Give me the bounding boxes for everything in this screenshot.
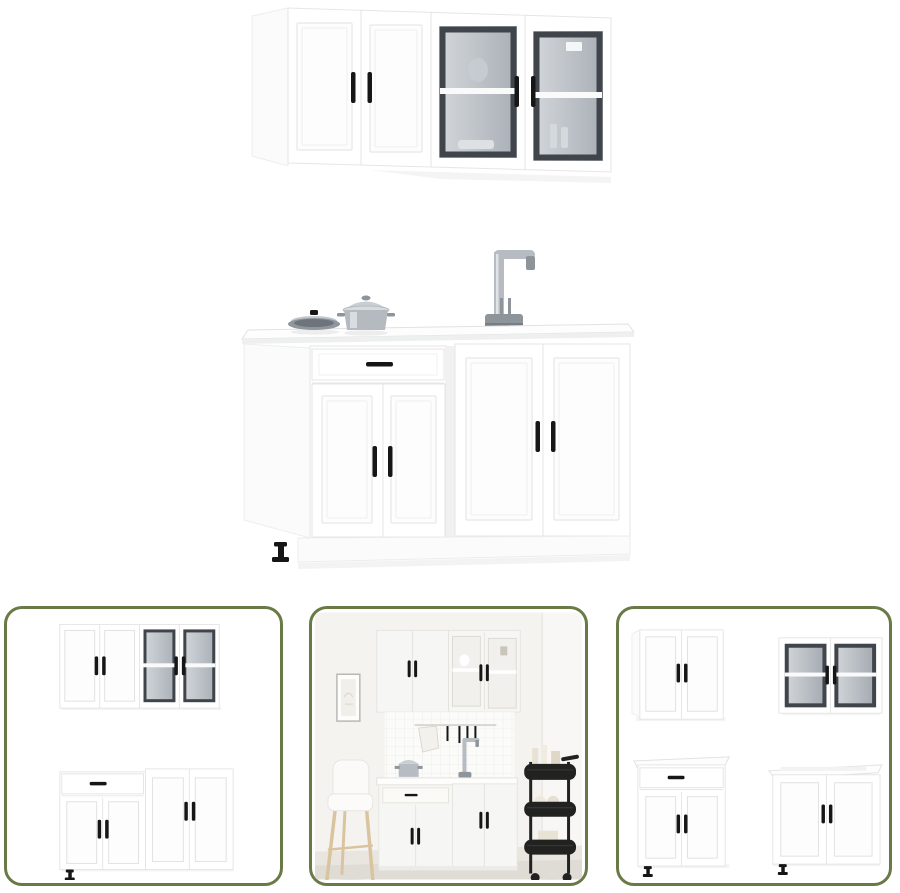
thumbnail-room-scene-graphic [315,612,582,880]
picture-frame [337,674,360,721]
base-cabinet-drawer [310,346,446,538]
trolley-basket [524,840,576,855]
base-side-panel [244,344,310,538]
wall-door-panel-left [288,8,361,165]
thumb3-base-cabinet-drawer [634,757,729,877]
thumb3-foot [643,866,653,877]
door-handle [351,72,356,103]
thumbnail-individual-cabinets[interactable] [616,606,892,886]
door-handle [515,76,520,107]
plate-stack [458,140,494,149]
cooking-pot [337,296,395,331]
base-unit-graphic [238,236,662,580]
trolley-basket [524,802,576,817]
thumb1-wall-cabinet [60,624,221,710]
trolley-basket [524,764,576,780]
faucet-icon [485,250,535,326]
box-in-cabinet [566,42,582,51]
stool-seat [328,794,373,811]
scene-base-unit [377,778,517,871]
sink-door-right [543,344,630,536]
main-product-image-wall-cabinet [250,0,648,188]
bowl-in-cabinet [468,58,488,82]
wall-cabinet-shadow [370,170,611,183]
wall-cabinet-side-panel [252,8,288,166]
wall-door-glass-right [525,15,611,172]
hob-ring [344,330,388,335]
cutting-board [419,726,439,752]
product-image-collage [0,0,900,893]
door-handle [531,76,536,107]
glass-shelf [534,92,602,98]
thumbnail-front-view[interactable] [4,606,283,886]
glassware [561,127,568,148]
drawer-handle [366,362,393,367]
wall-door-glass-left [431,12,525,169]
thumb1-sink-cabinet [145,769,233,870]
sink-door-left [455,344,543,536]
door-handle [368,72,373,103]
thumb3-base-cabinet-sink [769,765,882,875]
thumb1-base-unit [60,769,233,880]
scene-wall-cabinet [377,630,520,712]
bottle [532,748,538,764]
door-handle [373,446,378,477]
thumbnail-individual-cabinets-graphic [622,613,886,879]
glass-shelf [440,88,516,94]
thumbnail-front-view-graphic [10,612,277,880]
thumb1-drawer-cabinet [60,772,146,870]
door-handle [536,421,541,452]
hob-ring [291,329,339,334]
base-cabinet-sink [455,344,630,536]
jar [551,751,560,764]
wall-cabinet-graphic [250,0,648,188]
scene-glass-doors [452,632,516,710]
thumb3-wall-cabinet-panel [632,630,725,721]
thumb3-foot [778,864,788,875]
frying-pan [288,310,340,330]
cabinet-gap [446,346,455,538]
adjustable-foot [272,542,289,562]
base-door-left [312,384,383,537]
thumbnail-room-scene[interactable] [309,606,588,886]
thumb1-foot [65,870,75,880]
thumb3-wall-cabinet-glass [779,638,882,715]
drawer-front [312,349,444,380]
glassware [550,124,557,148]
door-handle [551,421,556,452]
bottle [541,745,547,764]
sink-cutout [781,767,866,771]
thumb1-glass-doors [144,624,216,708]
door-handle [388,446,393,477]
main-product-image-base-unit [238,236,662,580]
